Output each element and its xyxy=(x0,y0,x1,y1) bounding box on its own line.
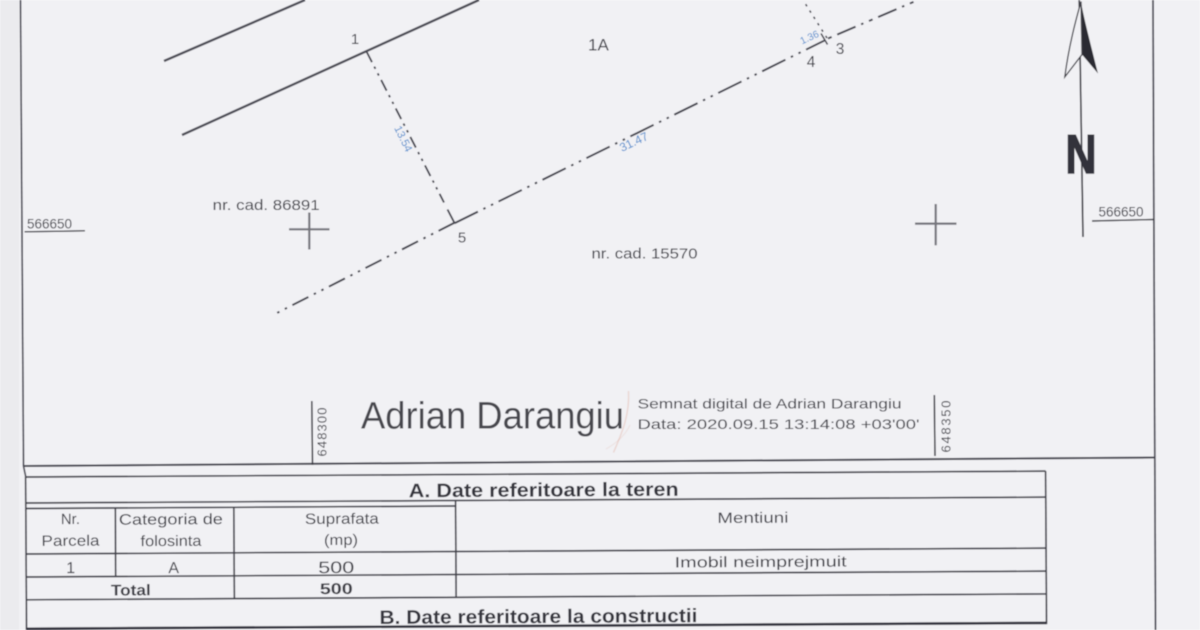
svg-text:Nr.: Nr. xyxy=(61,511,80,528)
svg-text:500: 500 xyxy=(320,581,353,598)
svg-text:Parcela: Parcela xyxy=(41,533,100,550)
svg-text:4: 4 xyxy=(807,54,816,71)
svg-text:566650: 566650 xyxy=(1099,205,1144,220)
svg-text:500: 500 xyxy=(318,559,354,577)
svg-text:folosinta: folosinta xyxy=(140,533,202,550)
svg-text:A. Date referitoare la teren: A. Date referitoare la teren xyxy=(409,479,679,503)
svg-text:Categoria de: Categoria de xyxy=(119,511,223,529)
svg-text:1: 1 xyxy=(66,560,75,577)
svg-text:Semnat digital de Adrian Daran: Semnat digital de Adrian Darangiu xyxy=(638,396,902,411)
svg-text:Mentiuni: Mentiuni xyxy=(717,510,788,527)
svg-text:566650: 566650 xyxy=(27,217,72,232)
svg-text:1A: 1A xyxy=(588,36,609,55)
svg-text:5: 5 xyxy=(458,230,466,247)
svg-text:(mp): (mp) xyxy=(324,532,358,549)
svg-text:1: 1 xyxy=(351,31,359,48)
svg-text:Imobil neimprejmuit: Imobil neimprejmuit xyxy=(675,553,848,571)
svg-text:Adrian Darangiu: Adrian Darangiu xyxy=(361,396,624,438)
svg-text:B. Date referitoare la constru: B. Date referitoare la constructii xyxy=(379,605,697,629)
svg-text:Total: Total xyxy=(111,582,151,599)
svg-text:Data: 2020.09.15 13:14:08 +03': Data: 2020.09.15 13:14:08 +03'00' xyxy=(638,417,920,432)
svg-text:A: A xyxy=(168,560,179,577)
svg-text:N: N xyxy=(1066,123,1097,185)
svg-text:Suprafata: Suprafata xyxy=(305,511,380,528)
svg-text:nr. cad. 86891: nr. cad. 86891 xyxy=(213,197,320,214)
svg-text:nr. cad. 15570: nr. cad. 15570 xyxy=(592,246,698,263)
svg-text:3: 3 xyxy=(836,41,845,58)
